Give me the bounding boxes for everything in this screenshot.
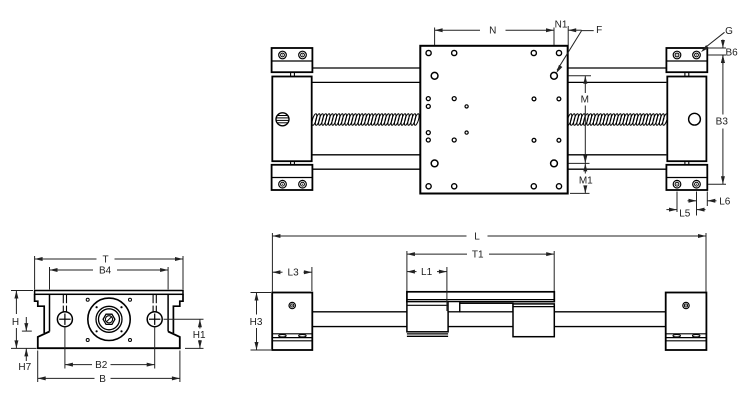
svg-text:L5: L5 [679,209,691,220]
svg-text:T: T [103,255,109,266]
svg-text:B6: B6 [725,47,738,58]
svg-text:L1: L1 [421,267,433,278]
svg-text:N: N [489,26,496,37]
svg-text:H1: H1 [193,330,206,341]
svg-text:M1: M1 [579,175,593,186]
svg-text:L6: L6 [719,196,731,207]
svg-text:H3: H3 [250,317,263,328]
svg-text:B3: B3 [716,117,729,128]
svg-text:G: G [725,26,733,37]
svg-text:H7: H7 [18,362,31,373]
svg-text:B: B [99,374,106,385]
svg-text:M: M [581,95,589,106]
svg-text:T1: T1 [472,250,484,261]
svg-text:L: L [474,232,480,243]
svg-text:L3: L3 [288,268,300,279]
svg-text:N1: N1 [555,20,568,31]
svg-text:H: H [12,317,19,328]
svg-text:B4: B4 [99,266,112,277]
svg-text:F: F [596,25,602,36]
svg-text:B2: B2 [95,360,108,371]
